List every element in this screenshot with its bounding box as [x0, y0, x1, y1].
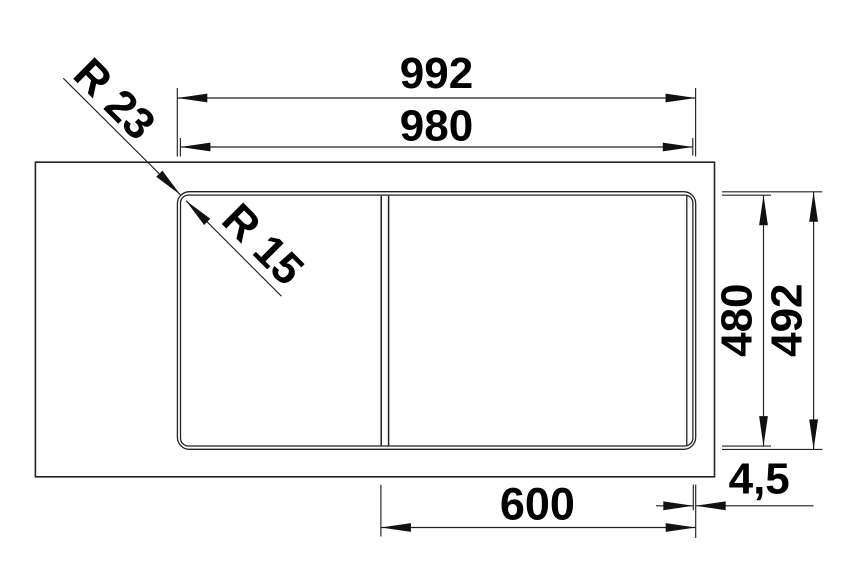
- svg-text:992: 992: [400, 49, 473, 98]
- svg-text:980: 980: [400, 102, 473, 151]
- svg-text:4,5: 4,5: [729, 455, 790, 504]
- svg-text:480: 480: [713, 283, 762, 356]
- svg-text:600: 600: [500, 478, 575, 529]
- svg-text:492: 492: [762, 283, 811, 356]
